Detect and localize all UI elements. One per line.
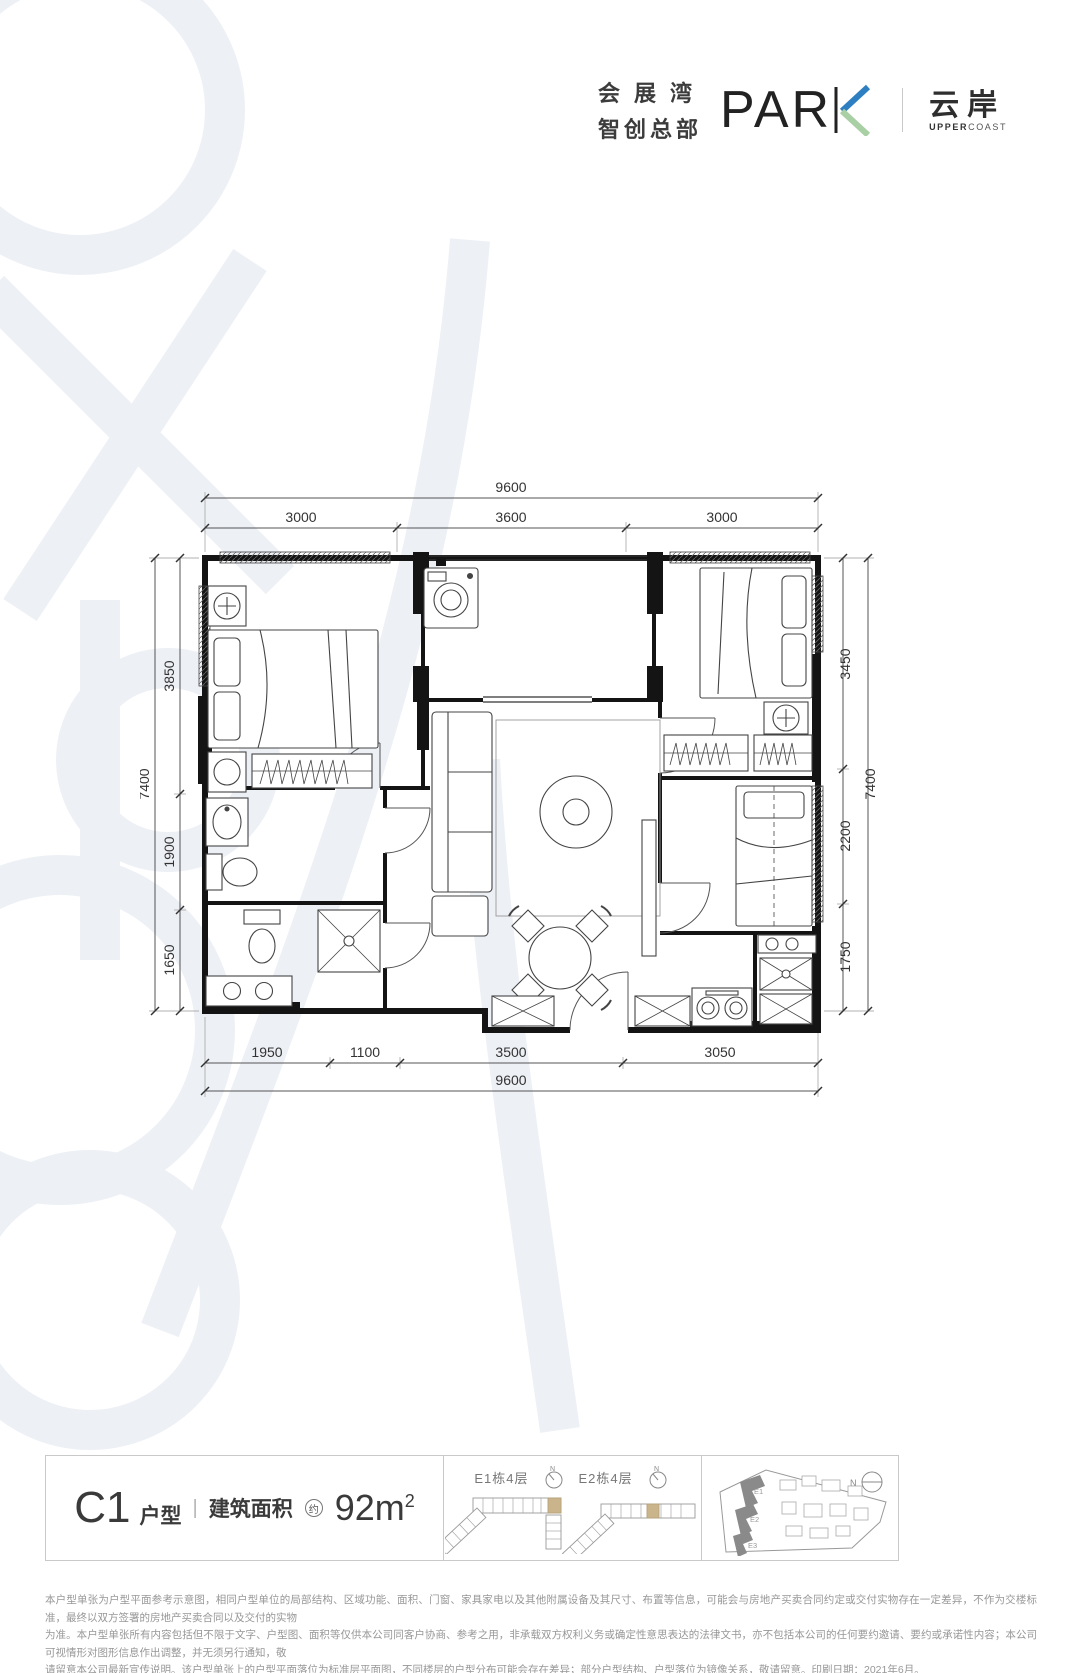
dim-right-seg-1: 2200: [837, 820, 853, 851]
logo-line1: 会展湾: [598, 76, 706, 108]
compass-icon: N: [645, 1464, 671, 1490]
area-label: 建筑面积: [209, 1493, 293, 1523]
dim-left-seg-1: 1900: [161, 836, 177, 867]
dim-top-overall: 9600: [495, 479, 526, 495]
brand-en-upper: UPPER: [929, 122, 968, 132]
site-label-e2: E2: [750, 1515, 759, 1524]
logo-chinese-block: 会展湾 智创总部: [598, 76, 706, 144]
bathroom1-fixtures: [206, 798, 257, 890]
dim-right-overall: 7400: [862, 768, 878, 799]
floorplan-drawing: 9600 3000 3600 3000 1950 1100 3500 3050 …: [140, 468, 920, 1168]
approx-circle-icon: 约: [305, 1499, 323, 1517]
unit-code: C1: [74, 1486, 130, 1530]
site-label-e1: E1: [754, 1487, 763, 1496]
park-letters: PAR: [720, 84, 832, 136]
dim-top-seg-1: 3600: [495, 509, 526, 525]
dim-left-seg-0: 3850: [161, 660, 177, 691]
site-compass-n-letter: N: [850, 1478, 857, 1488]
dim-right-seg-2: 1750: [837, 941, 853, 972]
bathroom3-fixtures: [758, 935, 816, 1024]
bedroom1-furniture: [208, 586, 378, 792]
disclaimer-line-1: 本户型单张为户型平面参考示意图，相同户型单位的局部结构、区域功能、面积、门窗、家…: [45, 1592, 1037, 1627]
floor-key-diagrams: [445, 1490, 701, 1554]
area-value: 92m2: [335, 1490, 415, 1526]
brand-block: 云岸 UPPERCOAST: [929, 89, 1007, 132]
disclaimer-block: 本户型单张为户型平面参考示意图，相同户型单位的局部结构、区域功能、面积、门窗、家…: [45, 1592, 1037, 1673]
site-plan: E1 E2 E3 N: [708, 1460, 893, 1556]
bedroom3-furniture: [736, 786, 812, 926]
dim-bottom-seg-0: 1950: [251, 1044, 282, 1060]
info-strip: C1 户型 | 建筑面积 约 92m2 E1栋4层 N E2栋4层 N: [45, 1455, 899, 1561]
floor-key-cell: E1栋4层 N E2栋4层 N: [443, 1456, 701, 1560]
dining-set: [509, 906, 611, 1010]
brand-en-coast: COAST: [968, 122, 1007, 132]
bedroom2-furniture: [664, 568, 812, 771]
dim-left-seg-2: 1650: [161, 944, 177, 975]
brand-chinese: 云岸: [929, 89, 1005, 122]
floor-key-label-e1: E1栋4层: [474, 1468, 528, 1487]
living-room-furniture: [432, 712, 660, 956]
bathroom2-fixtures: [206, 910, 380, 1006]
logo-divider: [902, 88, 903, 132]
dim-left-overall: 7400: [140, 768, 152, 799]
site-plan-cell: E1 E2 E3 N: [701, 1456, 898, 1560]
site-label-e3: E3: [748, 1541, 757, 1550]
park-k-icon: [832, 84, 872, 136]
dim-top-seg-0: 3000: [285, 509, 316, 525]
floorplan: 9600 3000 3600 3000 1950 1100 3500 3050 …: [140, 468, 920, 1168]
balcony-washer: [424, 558, 478, 628]
compass-icon: N: [541, 1464, 567, 1490]
dim-bottom-seg-2: 3500: [495, 1044, 526, 1060]
logo-line2: 智创总部: [598, 112, 706, 144]
brand-english: UPPERCOAST: [929, 122, 1007, 132]
floor-key-label-e2: E2栋4层: [579, 1468, 633, 1487]
disclaimer-line-3: 请留意本公司最新宣传说明。该户型单张上的户型平面落位为标准层平面图，不同楼层的户…: [45, 1662, 1037, 1673]
area-number: 92m: [335, 1487, 405, 1528]
dim-bottom-overall: 9600: [495, 1072, 526, 1088]
dim-bottom-seg-3: 3050: [704, 1044, 735, 1060]
unit-info-cell: C1 户型 | 建筑面积 约 92m2: [46, 1456, 443, 1560]
project-logo: 会展湾 智创总部 PAR 云岸 UPPERCOAST: [598, 76, 1007, 144]
dim-right-seg-0: 3450: [837, 648, 853, 679]
disclaimer-line-2: 为准。本户型单张所有内容包括但不限于文字、户型图、面积等仅供本公司同客户协商、参…: [45, 1627, 1037, 1662]
flyer-page: { "logo": { "cn_line1": "会展湾", "cn_line2…: [0, 0, 1080, 1673]
unit-suffix: 户型: [140, 1500, 182, 1530]
dim-top-seg-2: 3000: [706, 509, 737, 525]
furniture: [206, 558, 816, 1026]
floor-key-labels: E1栋4层 N E2栋4层 N: [474, 1464, 670, 1490]
dim-bottom-seg-1: 1100: [350, 1044, 380, 1060]
park-wordmark: PAR: [720, 84, 872, 136]
area-superscript: 2: [405, 1491, 415, 1511]
unit-divider: |: [193, 1497, 198, 1520]
